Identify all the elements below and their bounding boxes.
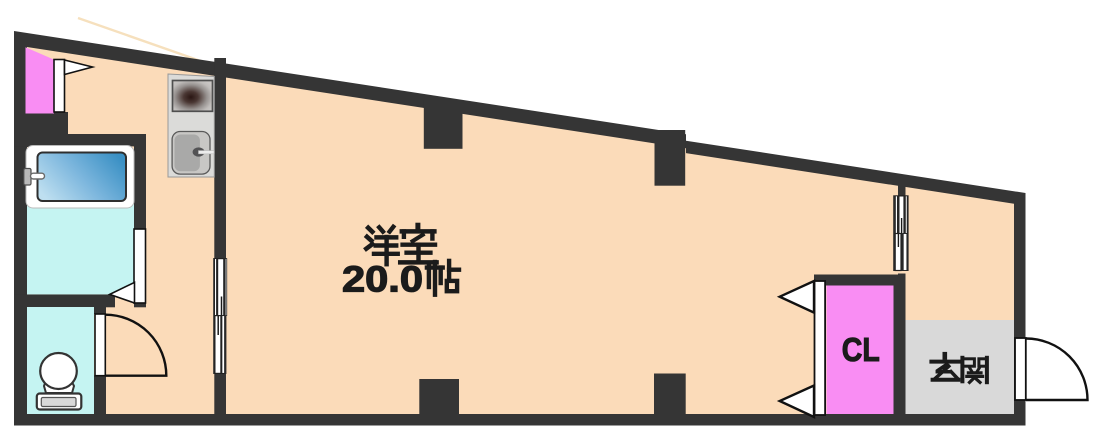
svg-text:CL: CL — [842, 332, 880, 369]
svg-text:20.0: 20.0 — [342, 260, 423, 300]
